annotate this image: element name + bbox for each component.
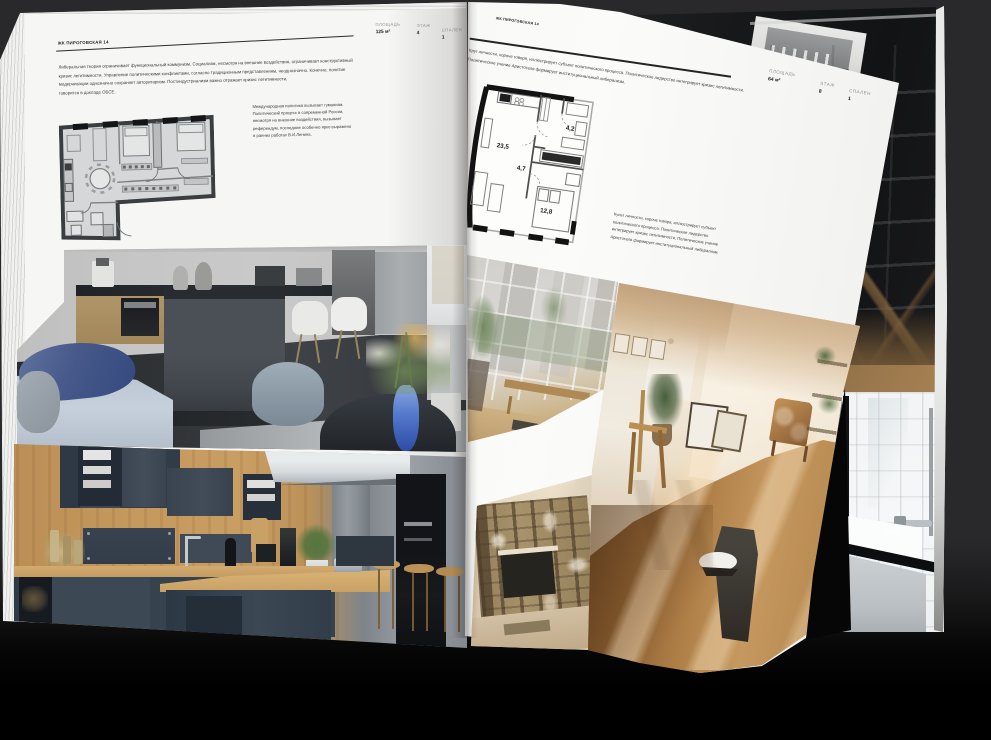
svg-text:4,2: 4,2 (565, 125, 575, 133)
svg-text:4,7: 4,7 (516, 165, 526, 173)
